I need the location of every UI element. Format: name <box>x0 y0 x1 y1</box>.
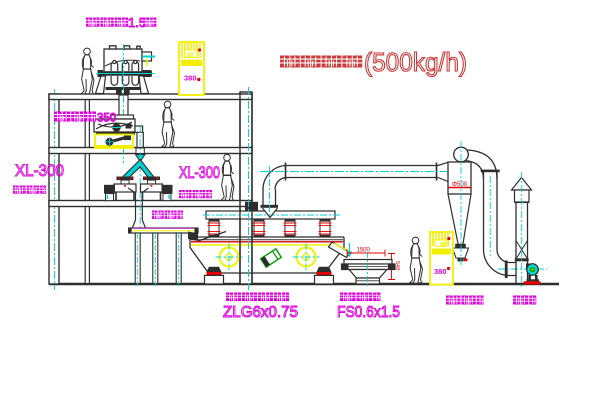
svg-text:XL-300: XL-300 <box>179 163 220 182</box>
svg-text:380: 380 <box>184 74 197 83</box>
svg-text:380: 380 <box>434 267 447 276</box>
svg-text:XL-300: XL-300 <box>15 161 64 180</box>
svg-text:FS0.6x1.5: FS0.6x1.5 <box>337 304 400 321</box>
svg-text:1500: 1500 <box>357 248 371 254</box>
svg-text:88: 88 <box>187 53 194 59</box>
svg-text:350: 350 <box>97 113 116 125</box>
svg-text:(500kg/h): (500kg/h) <box>364 47 467 77</box>
svg-text:Φ500: Φ500 <box>452 181 468 188</box>
svg-text:88: 88 <box>440 242 446 248</box>
svg-text:ZLG6x0.75: ZLG6x0.75 <box>223 304 298 321</box>
